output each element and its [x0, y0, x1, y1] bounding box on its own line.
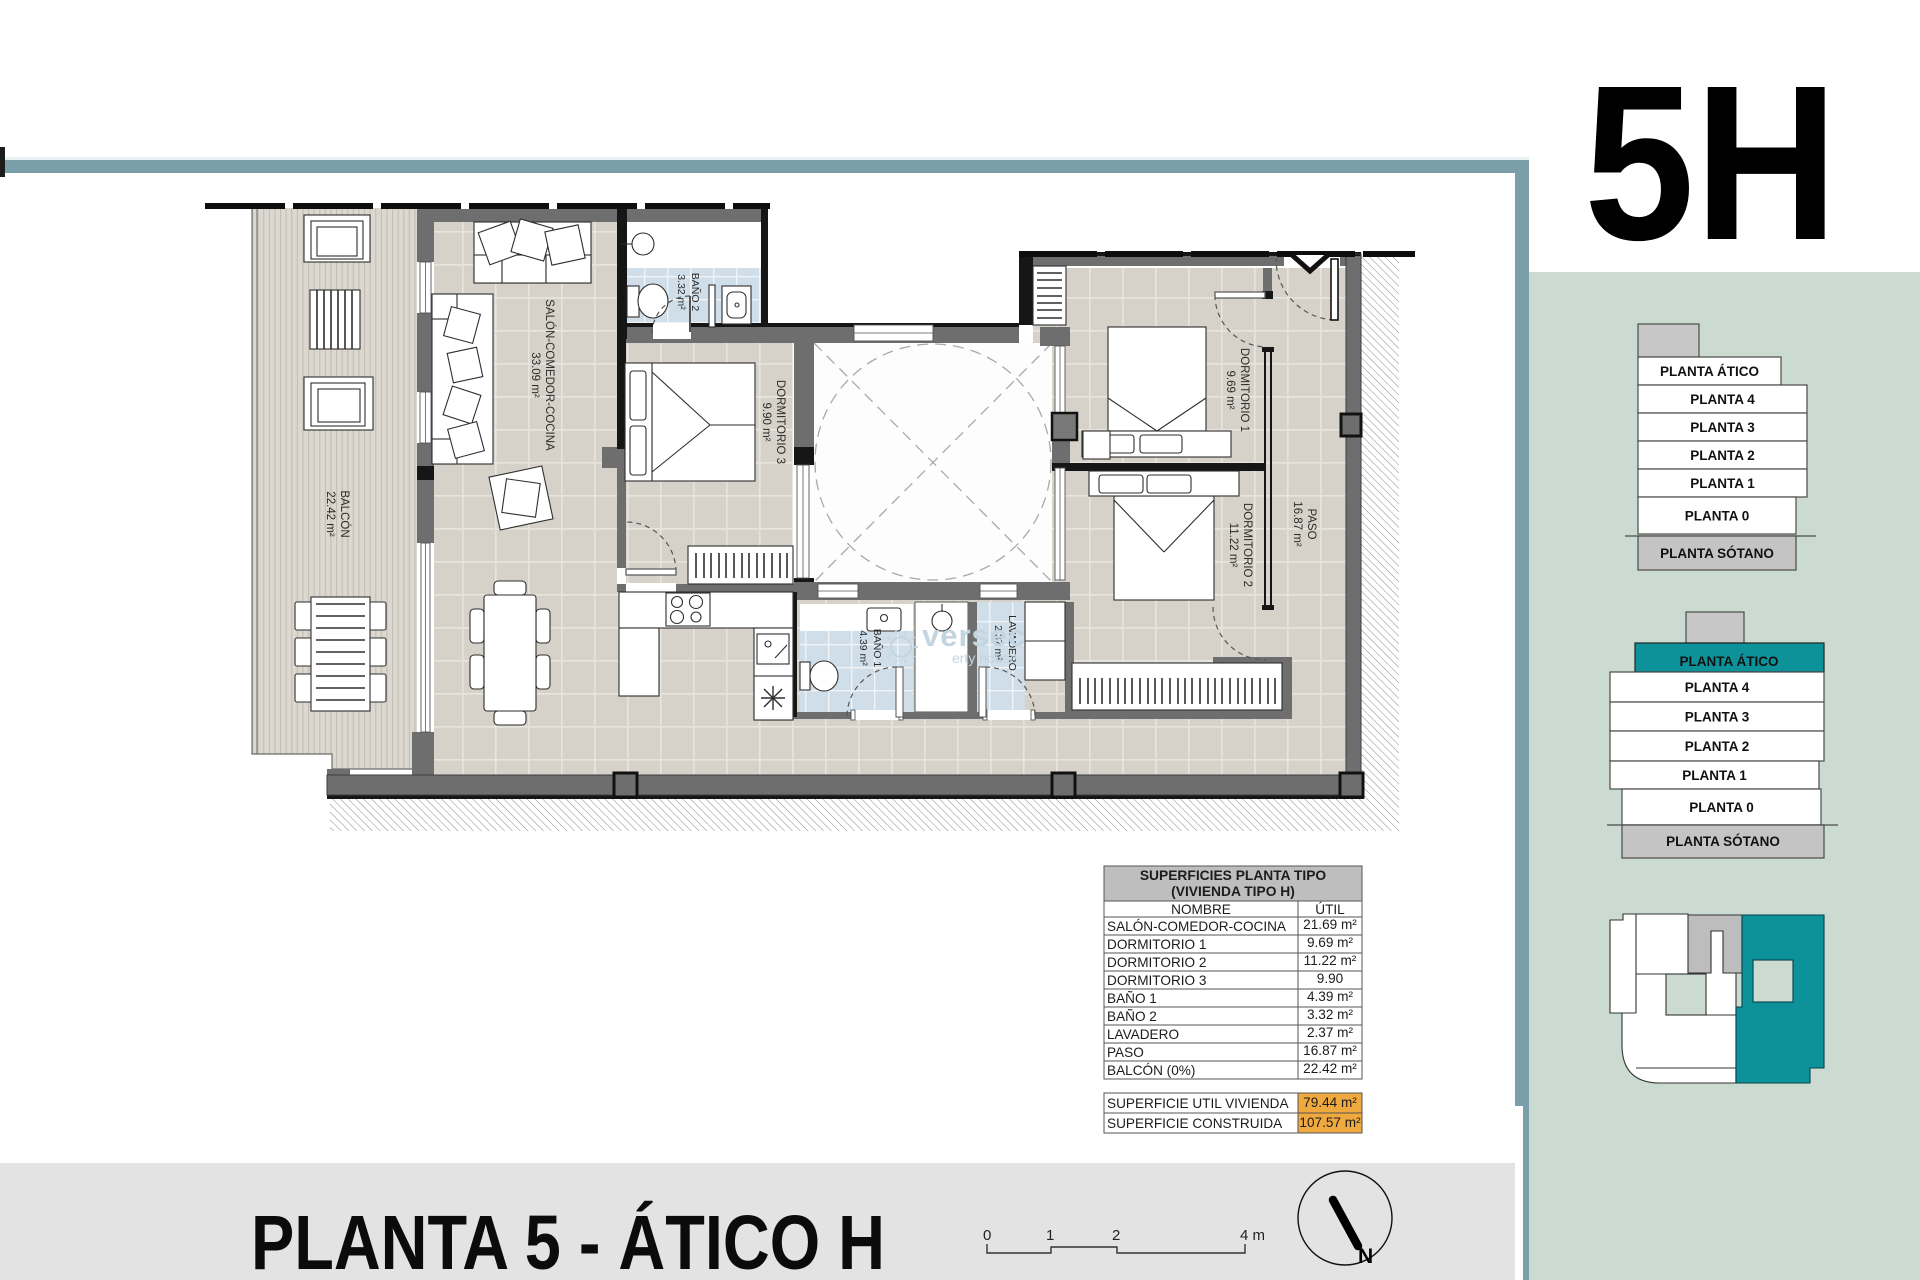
svg-text:PLANTA ÁTICO: PLANTA ÁTICO — [1660, 364, 1759, 379]
svg-text:PLANTA SÓTANO: PLANTA SÓTANO — [1666, 834, 1780, 849]
svg-text:PASO: PASO — [1107, 1045, 1144, 1060]
svg-text:versec: versec — [922, 618, 1026, 653]
svg-text:PLANTA 1: PLANTA 1 — [1682, 768, 1747, 783]
svg-text:BAÑO 1: BAÑO 1 — [1107, 991, 1157, 1006]
svg-text:PLANTA 0: PLANTA 0 — [1685, 509, 1750, 524]
svg-text:LAVADERO: LAVADERO — [1107, 1027, 1179, 1042]
svg-text:DORMITORIO 2: DORMITORIO 2 — [1107, 955, 1206, 970]
svg-text:9.90: 9.90 — [1317, 971, 1344, 986]
svg-text:79.44 m²: 79.44 m² — [1303, 1095, 1357, 1110]
svg-text:SALÓN-COMEDOR-COCINA: SALÓN-COMEDOR-COCINA — [1107, 919, 1287, 934]
svg-text:PLANTA 0: PLANTA 0 — [1689, 800, 1754, 815]
svg-text:ÚTIL: ÚTIL — [1315, 902, 1345, 917]
svg-text:PLANTA 5 - ÁTICO H: PLANTA 5 - ÁTICO H — [251, 1199, 885, 1280]
svg-text:BALCÓN (0%): BALCÓN (0%) — [1107, 1063, 1195, 1078]
svg-text:21.69 m²: 21.69 m² — [1303, 917, 1357, 932]
svg-text:16.87 m²: 16.87 m² — [1303, 1043, 1357, 1058]
svg-text:SUPERFICIES PLANTA TIPO: SUPERFICIES PLANTA TIPO — [1140, 868, 1327, 883]
svg-text:2.37 m²: 2.37 m² — [1307, 1025, 1354, 1040]
svg-text:PLANTA SÓTANO: PLANTA SÓTANO — [1660, 546, 1774, 561]
svg-text:SUPERFICIE CONSTRUIDA: SUPERFICIE CONSTRUIDA — [1107, 1116, 1283, 1131]
svg-text:N: N — [1358, 1245, 1373, 1268]
svg-text:9.69 m²: 9.69 m² — [1307, 935, 1354, 950]
svg-text:NOMBRE: NOMBRE — [1171, 902, 1231, 917]
svg-text:PLANTA 2: PLANTA 2 — [1690, 448, 1755, 463]
svg-text:3.32 m²: 3.32 m² — [1307, 1007, 1354, 1022]
svg-text:PLANTA 1: PLANTA 1 — [1690, 476, 1755, 491]
svg-text:erty house: erty house — [952, 650, 1018, 666]
svg-text:5H: 5H — [1584, 39, 1838, 286]
svg-text:DORMITORIO 1: DORMITORIO 1 — [1107, 937, 1206, 952]
svg-text:BAÑO 2: BAÑO 2 — [1107, 1009, 1157, 1024]
svg-text:2: 2 — [1112, 1227, 1120, 1244]
svg-text:4 m: 4 m — [1240, 1227, 1265, 1244]
svg-text:PLANTA 4: PLANTA 4 — [1685, 680, 1750, 695]
svg-text:PLANTA 3: PLANTA 3 — [1685, 710, 1750, 725]
svg-text:PLANTA 4: PLANTA 4 — [1690, 392, 1755, 407]
svg-text:22.42 m²: 22.42 m² — [1303, 1061, 1357, 1076]
svg-text:PLANTA ÁTICO: PLANTA ÁTICO — [1680, 654, 1779, 669]
svg-text:1: 1 — [1046, 1227, 1054, 1244]
svg-text:4.39 m²: 4.39 m² — [1307, 989, 1354, 1004]
svg-text:SUPERFICIE UTIL VIVIENDA: SUPERFICIE UTIL VIVIENDA — [1107, 1096, 1289, 1111]
svg-text:(VIVIENDA TIPO H): (VIVIENDA TIPO H) — [1171, 884, 1295, 899]
svg-text:DORMITORIO 3: DORMITORIO 3 — [1107, 973, 1206, 988]
svg-text:PLANTA 2: PLANTA 2 — [1685, 739, 1750, 754]
svg-text:0: 0 — [983, 1227, 991, 1244]
svg-text:107.57 m²: 107.57 m² — [1299, 1115, 1361, 1130]
svg-text:11.22 m²: 11.22 m² — [1304, 953, 1357, 968]
svg-text:PLANTA 3: PLANTA 3 — [1690, 420, 1755, 435]
